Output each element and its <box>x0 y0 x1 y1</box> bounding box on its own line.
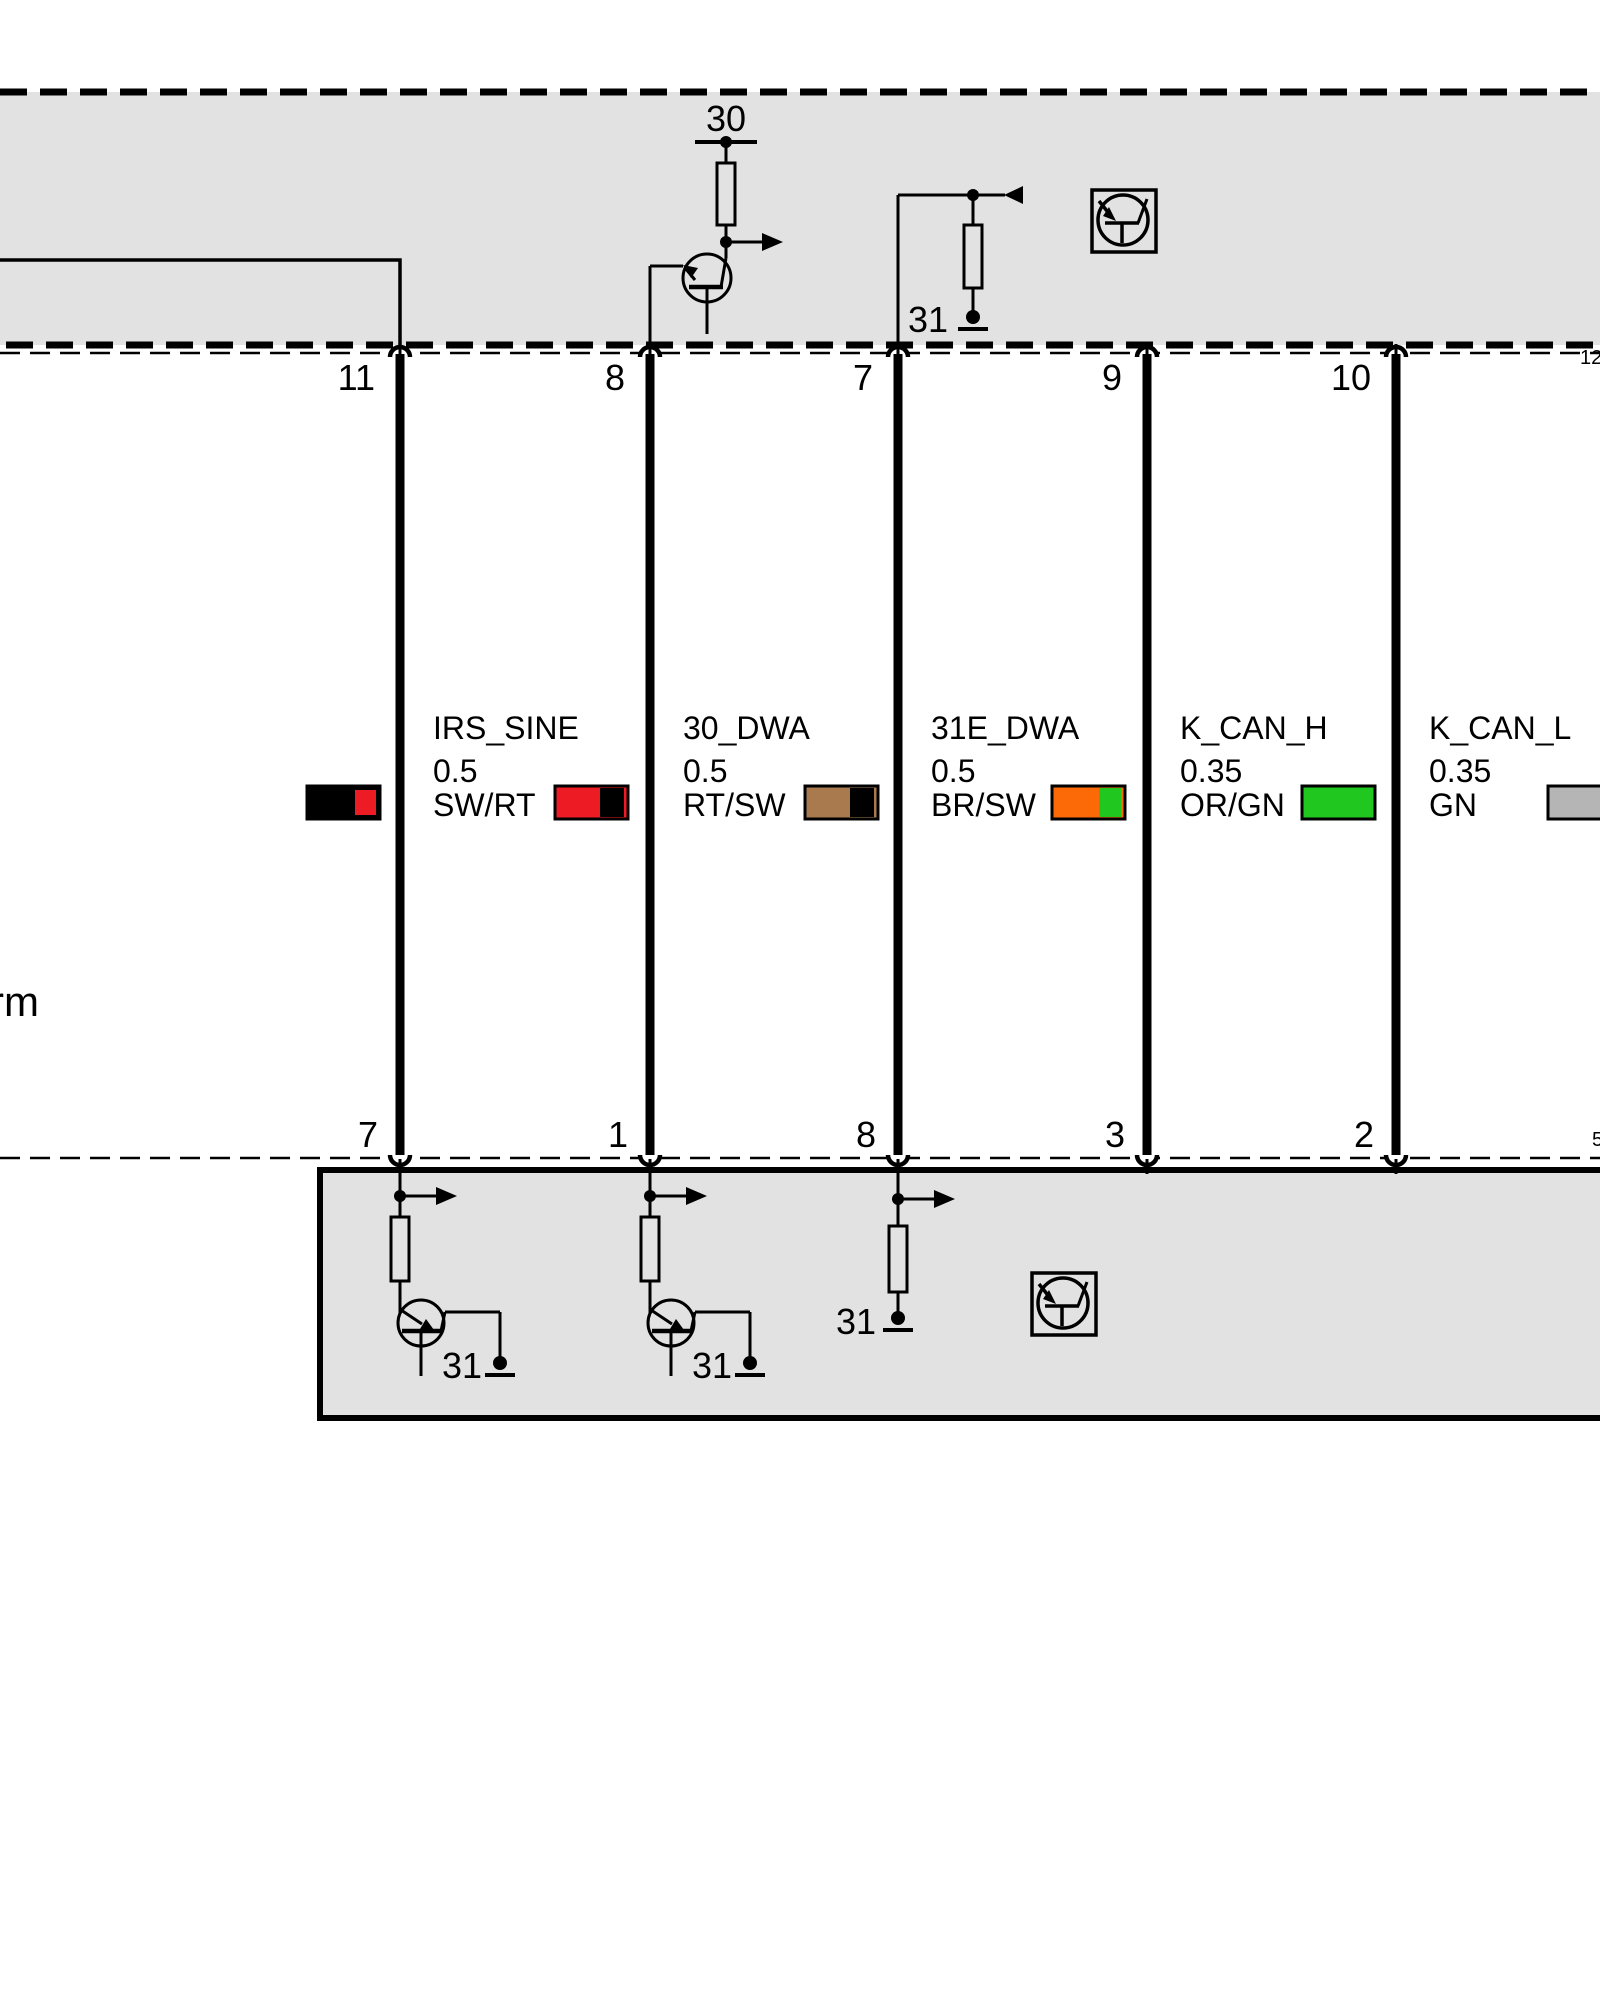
wire-name: 31E_DWA <box>931 710 1080 746</box>
bottom-pin-number: 5 <box>1592 1129 1600 1151</box>
wire-gauge: 0.5 <box>931 753 975 789</box>
wire-color-code: RT/SW <box>683 787 786 823</box>
ground-31-label: 31 <box>692 1345 732 1386</box>
wire-color-code: OR/GN <box>1180 787 1285 823</box>
color-swatch-br-sw <box>805 786 878 819</box>
bottom-pin-number: 8 <box>856 1114 876 1155</box>
bottom-pin-number: 7 <box>358 1114 378 1155</box>
ground-dot <box>966 310 980 324</box>
bottom-pin-number: 2 <box>1354 1114 1374 1155</box>
resistor-symbol <box>391 1217 409 1281</box>
top-pin-number: 10 <box>1331 357 1371 398</box>
top-module-box <box>0 92 1600 345</box>
color-swatch-sw-rt <box>307 786 380 819</box>
wire-color-code: GN <box>1429 787 1477 823</box>
color-swatch-gn <box>1302 786 1375 819</box>
wire-color-code: SW/RT <box>433 787 536 823</box>
top-pin-number: 12 <box>1580 347 1600 369</box>
top-pin-number: 9 <box>1102 357 1122 398</box>
color-swatch-or-gn <box>1052 786 1125 819</box>
wire-name: K_CAN_H <box>1180 710 1328 746</box>
bottom-pin-number: 3 <box>1105 1114 1125 1155</box>
resistor-symbol <box>641 1217 659 1281</box>
wiring-diagram: 30 31 <box>0 0 1600 2000</box>
top-pin-number: 7 <box>853 357 873 398</box>
top-pin-number: 11 <box>338 357 375 398</box>
bottom-module-box <box>320 1170 1600 1418</box>
wire-gauge: 0.35 <box>1180 753 1242 789</box>
bottom-pin-number: 1 <box>608 1114 628 1155</box>
ground-dot <box>493 1356 507 1370</box>
terminal-30-label: 30 <box>706 98 746 139</box>
wire-name: IRS_SINE <box>433 710 579 746</box>
ground-31-label: 31 <box>908 299 948 340</box>
ground-31-label: 31 <box>836 1301 876 1342</box>
top-pin-number: 8 <box>605 357 625 398</box>
wire-gauge: 0.5 <box>683 753 727 789</box>
color-swatch-rt-sw <box>555 786 628 819</box>
ground-dot <box>891 1311 905 1325</box>
wire-name: K_CAN_L <box>1429 710 1571 746</box>
wire-color-code: BR/SW <box>931 787 1037 823</box>
ground-31-label: 31 <box>442 1345 482 1386</box>
wire-name: 30_DWA <box>683 710 811 746</box>
ground-dot <box>743 1356 757 1370</box>
wire-gauge: 0.35 <box>1429 753 1491 789</box>
color-swatch-gray-partial <box>1548 786 1600 819</box>
resistor-symbol <box>964 225 982 288</box>
resistor-symbol <box>889 1226 907 1292</box>
left-edge-partial-label: rm <box>0 978 39 1025</box>
resistor-symbol <box>717 163 735 225</box>
wire-gauge: 0.5 <box>433 753 477 789</box>
